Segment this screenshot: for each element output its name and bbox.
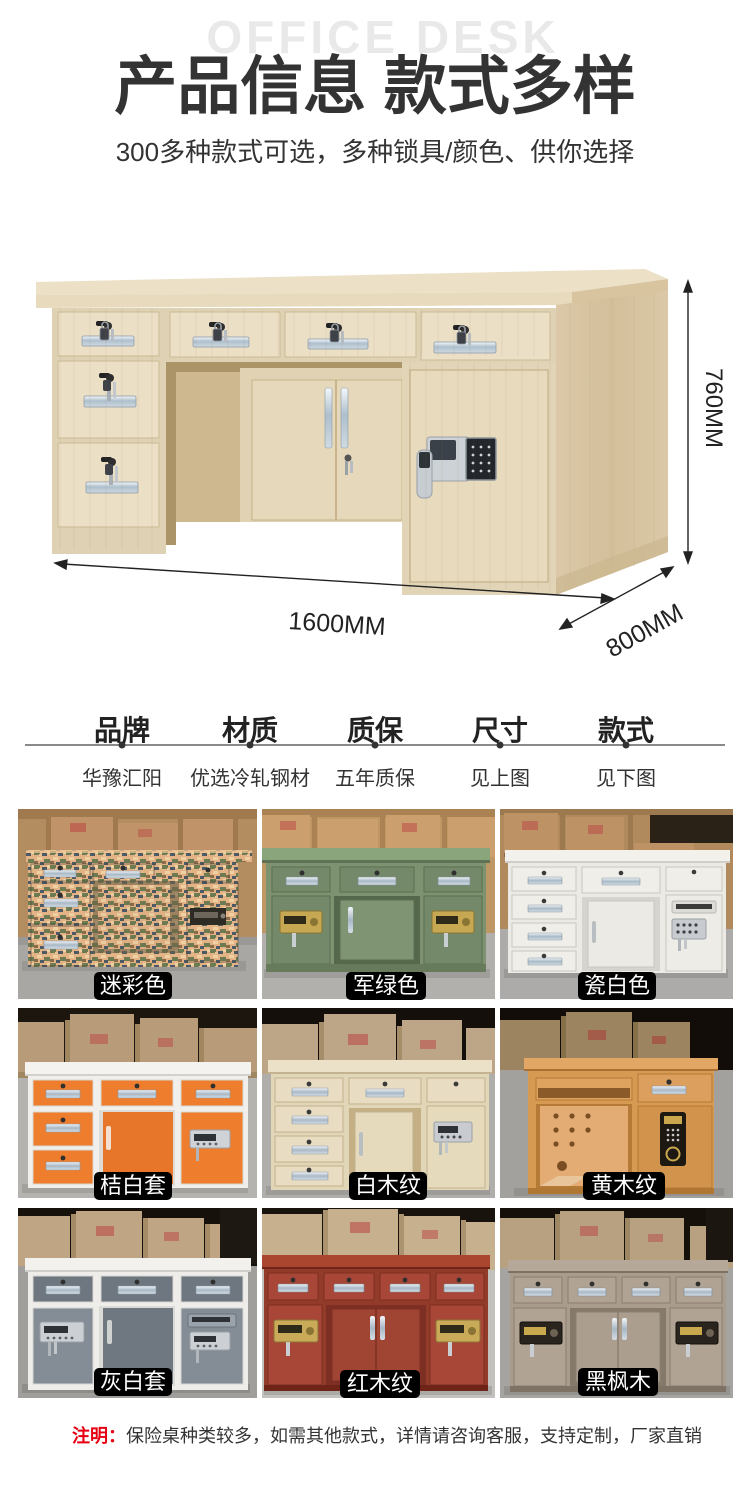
- svg-text:800MM: 800MM: [601, 598, 687, 660]
- svg-text:1600MM: 1600MM: [288, 607, 387, 641]
- svg-text:760MM: 760MM: [700, 368, 727, 448]
